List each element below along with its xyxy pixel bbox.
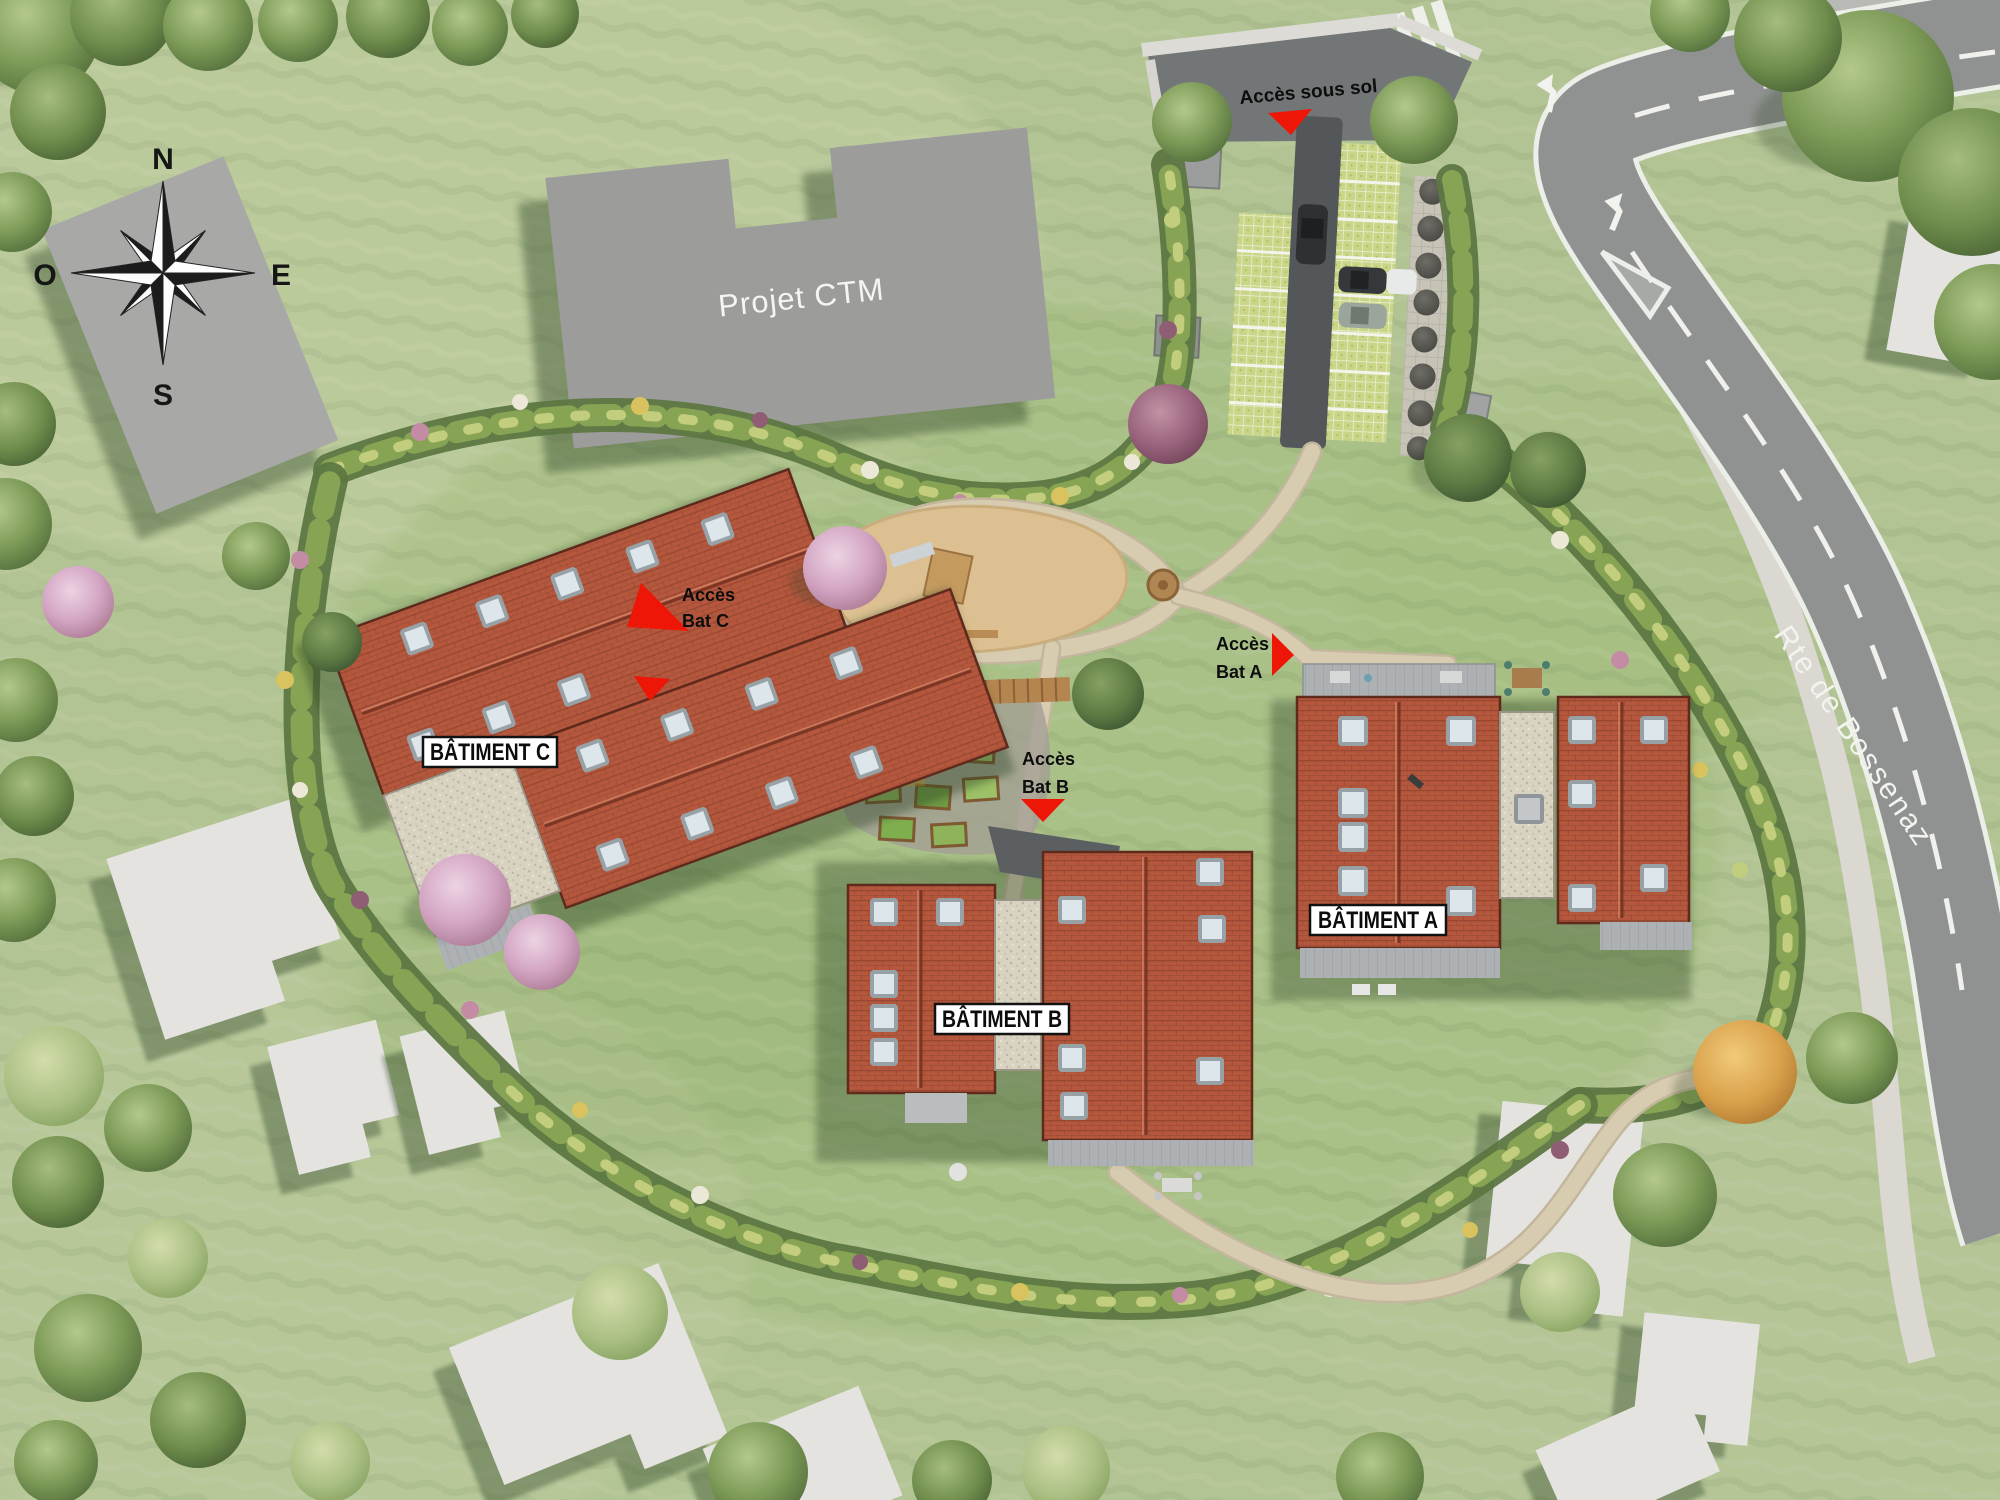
compass-north-label: N: [152, 143, 174, 176]
acces-bat-c-label-line2: Bat C: [682, 611, 729, 631]
acces-bat-b-label-line1: Accès: [1022, 749, 1075, 769]
batiment-b-label: BÂTIMENT B: [942, 1005, 1062, 1033]
acces-bat-c-label-line1: Accès: [682, 585, 735, 605]
terrace: [1300, 948, 1500, 978]
terrace: [1048, 1140, 1254, 1166]
terrace: [1600, 922, 1692, 950]
site-plan: Projet CTM: [0, 0, 2000, 1500]
hedge-band: [1446, 180, 1463, 428]
site-plan-page: Projet CTM: [0, 0, 2000, 1500]
acces-bat-b-label-line2: Bat B: [1022, 777, 1069, 797]
acces-bat-a-label-line1: Accès: [1216, 634, 1269, 654]
patio: [905, 1093, 967, 1123]
compass-south-label: S: [153, 379, 173, 412]
flat-roof-gravel: [995, 900, 1041, 1070]
acces-bat-a-label-line2: Bat A: [1216, 662, 1262, 682]
roof-hatch: [1516, 796, 1542, 822]
batiment-a-label: BÂTIMENT A: [1318, 906, 1438, 934]
compass-west-label: O: [33, 259, 56, 292]
batiment-c-label: BÂTIMENT C: [430, 738, 550, 766]
building-a: [1271, 661, 1692, 1000]
compass-east-label: E: [271, 259, 291, 292]
